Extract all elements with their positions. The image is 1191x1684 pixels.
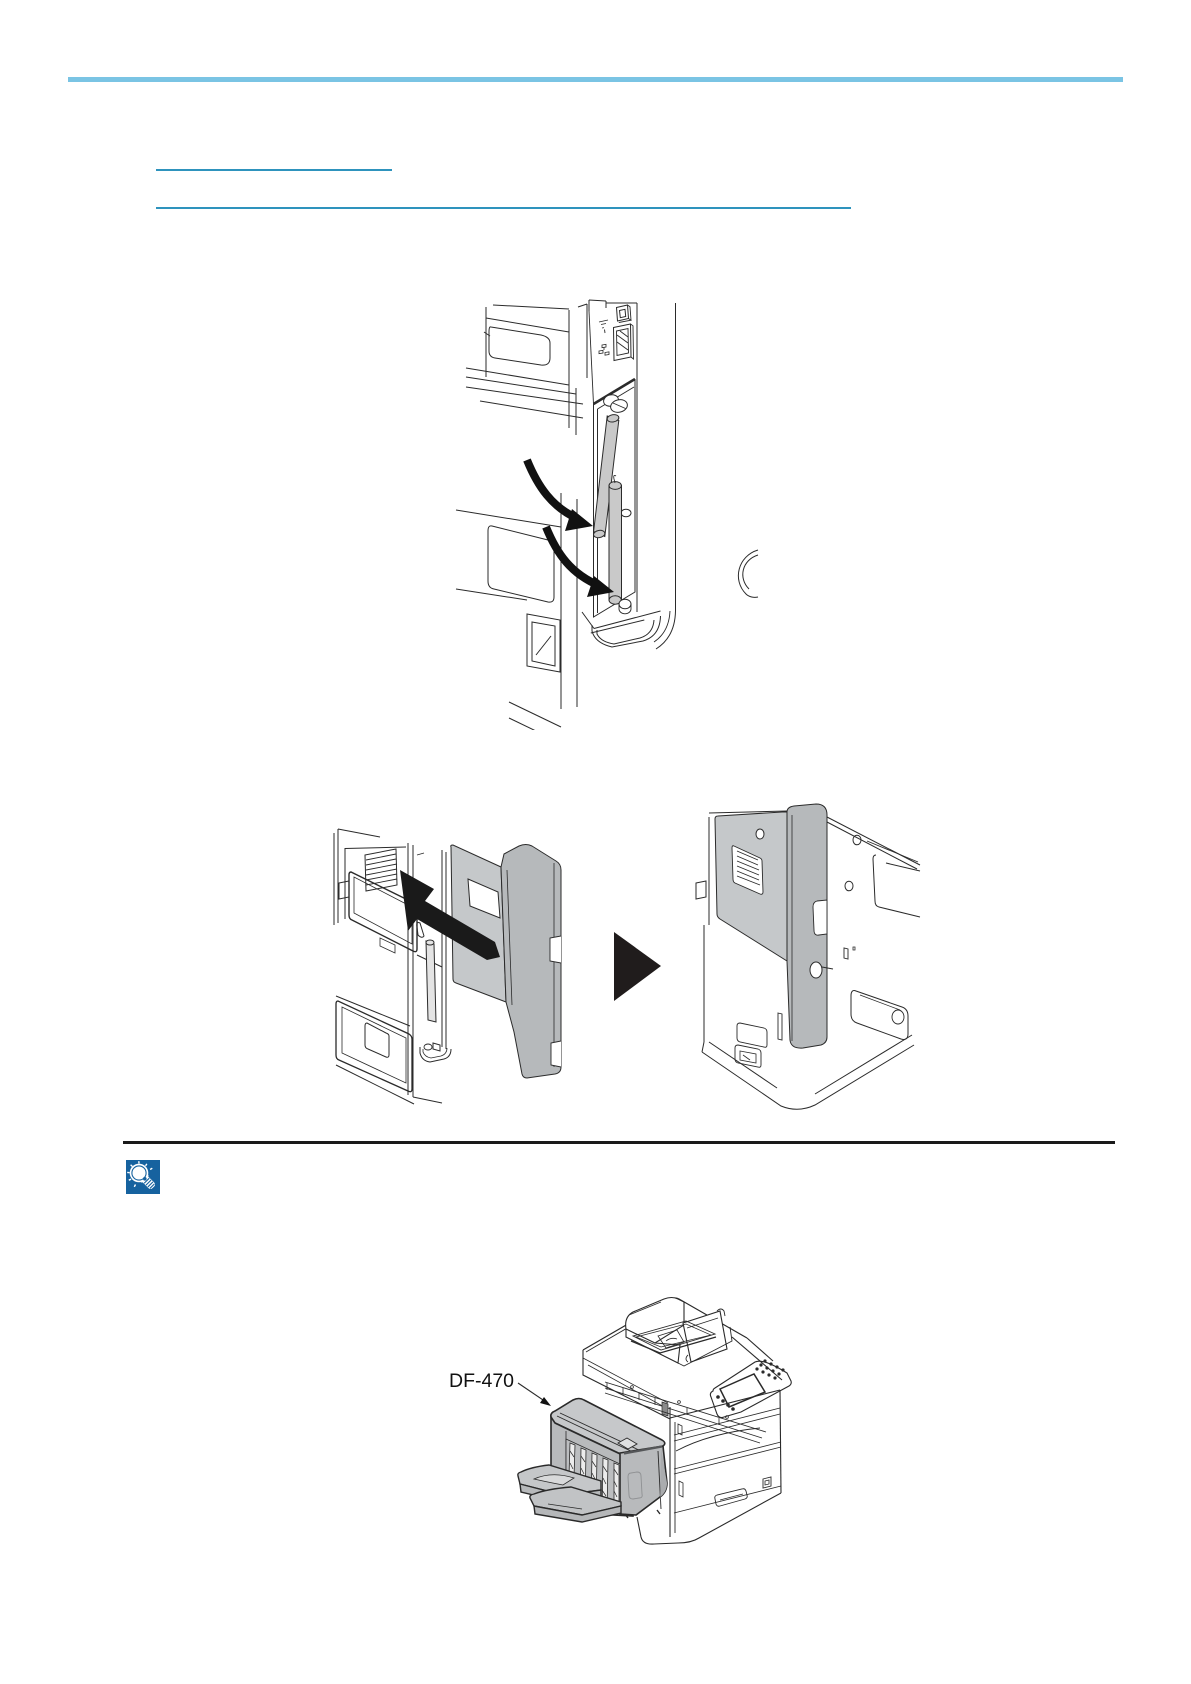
svg-text:DF-470: DF-470 bbox=[449, 1370, 514, 1392]
